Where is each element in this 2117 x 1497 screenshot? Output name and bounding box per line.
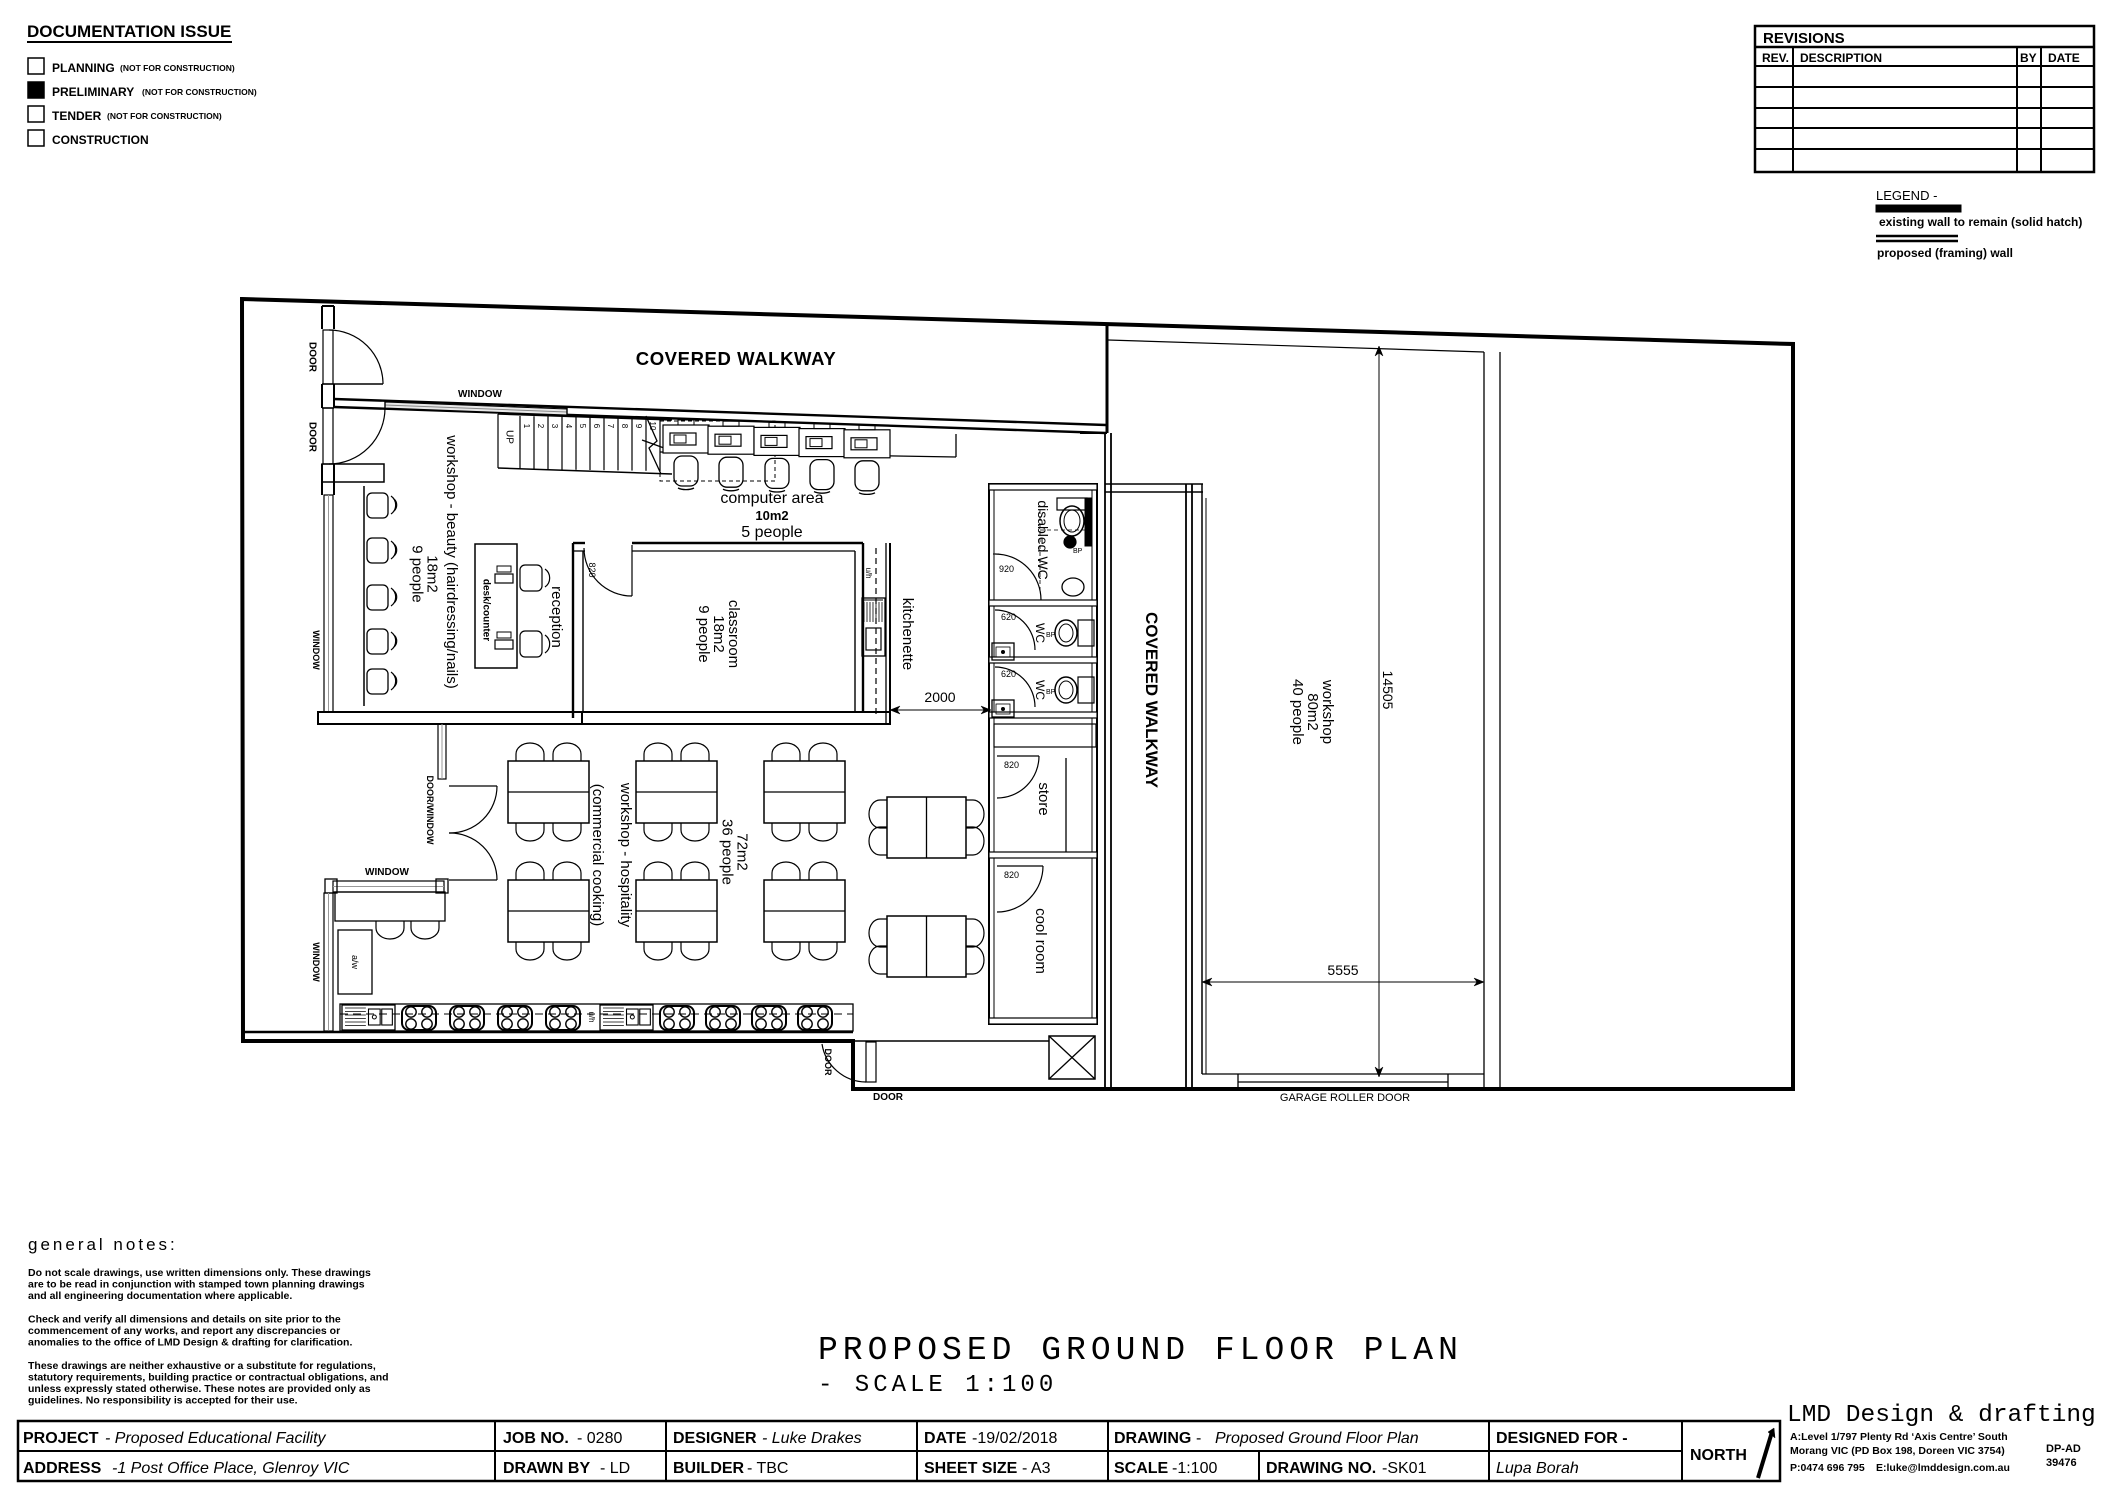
svg-text:COVERED WALKWAY: COVERED WALKWAY [636, 348, 837, 369]
svg-text:WINDOW: WINDOW [458, 389, 502, 400]
svg-text:computer area: computer area [720, 490, 823, 507]
svg-text:- SCALE 1:100: - SCALE 1:100 [818, 1372, 1057, 1399]
svg-text:- A3: - A3 [1022, 1460, 1051, 1477]
svg-text:WINDOW: WINDOW [311, 630, 321, 670]
svg-text:Lupa Borah: Lupa Borah [1496, 1460, 1579, 1477]
svg-text:u/h: u/h [864, 567, 873, 578]
svg-text:10m2: 10m2 [755, 508, 788, 523]
svg-text:5555: 5555 [1327, 962, 1358, 978]
svg-text:DESIGNER: DESIGNER [673, 1430, 757, 1447]
svg-text:TENDER: TENDER [52, 109, 102, 123]
svg-text:E:luke@lmddesign.com.au: E:luke@lmddesign.com.au [1876, 1462, 2010, 1474]
svg-text:WC: WC [1033, 623, 1047, 643]
svg-text:Do not scale drawings, use wri: Do not scale drawings, use written dimen… [28, 1267, 371, 1279]
svg-text:DRAWN BY: DRAWN BY [503, 1460, 590, 1477]
svg-text:-: - [1196, 1430, 1201, 1447]
svg-text:and all engineering documentat: and all engineering documentation where … [28, 1290, 292, 1302]
svg-text:anomalies to the office of LMD: anomalies to the office of LMD Design & … [28, 1337, 352, 1349]
svg-text:BUILDER: BUILDER [673, 1460, 745, 1477]
svg-text:DOOR: DOOR [307, 422, 318, 453]
svg-text:a/w: a/w [350, 955, 360, 970]
svg-text:-19/02/2018: -19/02/2018 [972, 1430, 1058, 1447]
svg-text:920: 920 [999, 564, 1014, 574]
svg-text:DOOR: DOOR [873, 1092, 904, 1103]
svg-text:3: 3 [550, 424, 559, 429]
svg-text:- 0280: - 0280 [577, 1430, 622, 1447]
svg-text:2000: 2000 [924, 689, 955, 705]
svg-text:NORTH: NORTH [1690, 1447, 1747, 1464]
svg-text:SCALE: SCALE [1114, 1460, 1169, 1477]
svg-text:9: 9 [634, 424, 643, 429]
svg-text:COVERED WALKWAY: COVERED WALKWAY [1142, 612, 1161, 789]
svg-text:(NOT FOR CONSTRUCTION): (NOT FOR CONSTRUCTION) [107, 111, 222, 121]
svg-text:DOOR: DOOR [823, 1049, 833, 1077]
svg-text:UP: UP [504, 430, 515, 444]
svg-text:PROPOSED GROUND FLOOR PLAN: PROPOSED GROUND FLOOR PLAN [818, 1332, 1463, 1369]
svg-text:820: 820 [1004, 870, 1019, 880]
svg-text:unless expressly stated otherw: unless expressly stated otherwise. These… [28, 1383, 371, 1395]
svg-text:DRAWING NO.: DRAWING NO. [1266, 1460, 1376, 1477]
svg-text:820: 820 [587, 562, 597, 577]
svg-text:39476: 39476 [2046, 1457, 2077, 1469]
svg-text:6: 6 [592, 424, 601, 429]
svg-text:620: 620 [1001, 612, 1016, 622]
svg-text:5 people: 5 people [741, 524, 802, 541]
svg-text:are to be read in conjunction: are to be read in conjunction with stamp… [28, 1279, 365, 1291]
svg-text:ADDRESS: ADDRESS [23, 1460, 102, 1477]
svg-text:store: store [1035, 782, 1052, 815]
svg-text:existing wall to remain (solid: existing wall to remain (solid hatch) [1879, 215, 2082, 229]
svg-text:cool room: cool room [1032, 908, 1049, 974]
svg-text:-1:100: -1:100 [1172, 1460, 1217, 1477]
svg-text:proposed (framing) wall: proposed (framing) wall [1877, 246, 2013, 260]
svg-text:7: 7 [606, 424, 615, 429]
svg-text:These drawings are neither exh: These drawings are neither exhaustive or… [28, 1360, 376, 1372]
svg-text:(NOT FOR CONSTRUCTION): (NOT FOR CONSTRUCTION) [142, 87, 257, 97]
svg-text:DOCUMENTATION ISSUE: DOCUMENTATION ISSUE [27, 22, 231, 41]
svg-text:DESCRIPTION: DESCRIPTION [1800, 51, 1882, 65]
svg-text:workshop - hospitality: workshop - hospitality [617, 782, 634, 928]
svg-text:REV.: REV. [1762, 51, 1789, 65]
svg-text:36 people: 36 people [718, 819, 735, 885]
svg-text:5: 5 [578, 424, 587, 429]
svg-text:GARAGE ROLLER DOOR: GARAGE ROLLER DOOR [1280, 1092, 1410, 1104]
svg-text:40 people: 40 people [1289, 679, 1306, 745]
svg-text:2: 2 [536, 424, 545, 429]
svg-text:PROJECT: PROJECT [23, 1430, 99, 1447]
svg-text:-1 Post Office Place, Glenroy: -1 Post Office Place, Glenroy VIC [112, 1460, 350, 1477]
svg-text:-SK01: -SK01 [1382, 1460, 1427, 1477]
svg-text:reception: reception [548, 586, 565, 648]
svg-text:LMD Design & drafting: LMD Design & drafting [1787, 1402, 2096, 1429]
svg-text:commencement of any works, and: commencement of any works, and report an… [28, 1325, 340, 1337]
svg-text:BY: BY [2020, 51, 2037, 65]
svg-text:(commercial cooking): (commercial cooking) [589, 784, 606, 927]
svg-text:8: 8 [620, 424, 629, 429]
svg-text:- LD: - LD [600, 1460, 630, 1477]
svg-text:desk/counter: desk/counter [481, 579, 492, 641]
svg-text:DATE: DATE [924, 1430, 967, 1447]
svg-text:general notes:: general notes: [28, 1235, 178, 1254]
svg-text:disabled WC: disabled WC [1035, 500, 1051, 579]
svg-text:DOOR/WINDOW: DOOR/WINDOW [425, 776, 435, 845]
svg-text:PRELIMINARY: PRELIMINARY [52, 85, 134, 99]
svg-text:workshop - beauty (hairdressin: workshop - beauty (hairdressing/nails) [443, 434, 460, 688]
svg-text:WINDOW: WINDOW [365, 867, 409, 878]
svg-text:REVISIONS: REVISIONS [1763, 30, 1845, 47]
svg-text:14505: 14505 [1380, 671, 1396, 710]
svg-text:SHEET SIZE: SHEET SIZE [924, 1460, 1018, 1477]
svg-text:PLANNING: PLANNING [52, 61, 115, 75]
svg-text:DOOR: DOOR [307, 342, 318, 373]
svg-text:1: 1 [522, 424, 531, 429]
svg-text:- Luke Drakes: - Luke Drakes [762, 1430, 862, 1447]
svg-text:DESIGNED FOR -: DESIGNED FOR - [1496, 1430, 1628, 1447]
svg-text:- Proposed Educational Facilit: - Proposed Educational Facility [105, 1430, 327, 1447]
svg-text:kitchenette: kitchenette [899, 598, 916, 671]
svg-text:620: 620 [1001, 669, 1016, 679]
svg-text:DATE: DATE [2048, 51, 2080, 65]
svg-text:4: 4 [564, 424, 573, 429]
svg-text:820: 820 [1004, 760, 1019, 770]
svg-text:- TBC: - TBC [747, 1460, 788, 1477]
svg-text:(NOT FOR CONSTRUCTION): (NOT FOR CONSTRUCTION) [120, 63, 235, 73]
svg-text:A:Level 1/797 Plenty Rd ‘Axis: A:Level 1/797 Plenty Rd ‘Axis Centre’ So… [1790, 1431, 2008, 1443]
svg-text:u/h: u/h [587, 1011, 596, 1022]
svg-text:statutory requirements, buildi: statutory requirements, building practic… [28, 1372, 389, 1384]
svg-text:9 people: 9 people [408, 545, 425, 603]
svg-text:BP: BP [1073, 548, 1083, 555]
svg-text:guidelines. No responsibility: guidelines. No responsibility is accepte… [28, 1395, 298, 1407]
svg-text:P:0474 696 795: P:0474 696 795 [1790, 1462, 1865, 1474]
svg-text:Check and verify all dimension: Check and verify all dimensions and deta… [28, 1314, 341, 1326]
svg-text:DRAWING: DRAWING [1114, 1430, 1191, 1447]
svg-text:Proposed Ground Floor Plan: Proposed Ground Floor Plan [1215, 1430, 1419, 1447]
svg-text:JOB NO.: JOB NO. [503, 1430, 569, 1447]
svg-text:WC: WC [1033, 680, 1047, 700]
svg-text:WINDOW: WINDOW [311, 942, 321, 982]
svg-text:Morang VIC (PD Box 198, Doreen: Morang VIC (PD Box 198, Doreen VIC 3754) [1790, 1445, 2005, 1457]
svg-text:DP-AD: DP-AD [2046, 1443, 2081, 1455]
svg-text:CONSTRUCTION: CONSTRUCTION [52, 133, 149, 147]
svg-text:LEGEND -: LEGEND - [1876, 188, 1937, 203]
svg-text:9 people: 9 people [695, 605, 712, 663]
